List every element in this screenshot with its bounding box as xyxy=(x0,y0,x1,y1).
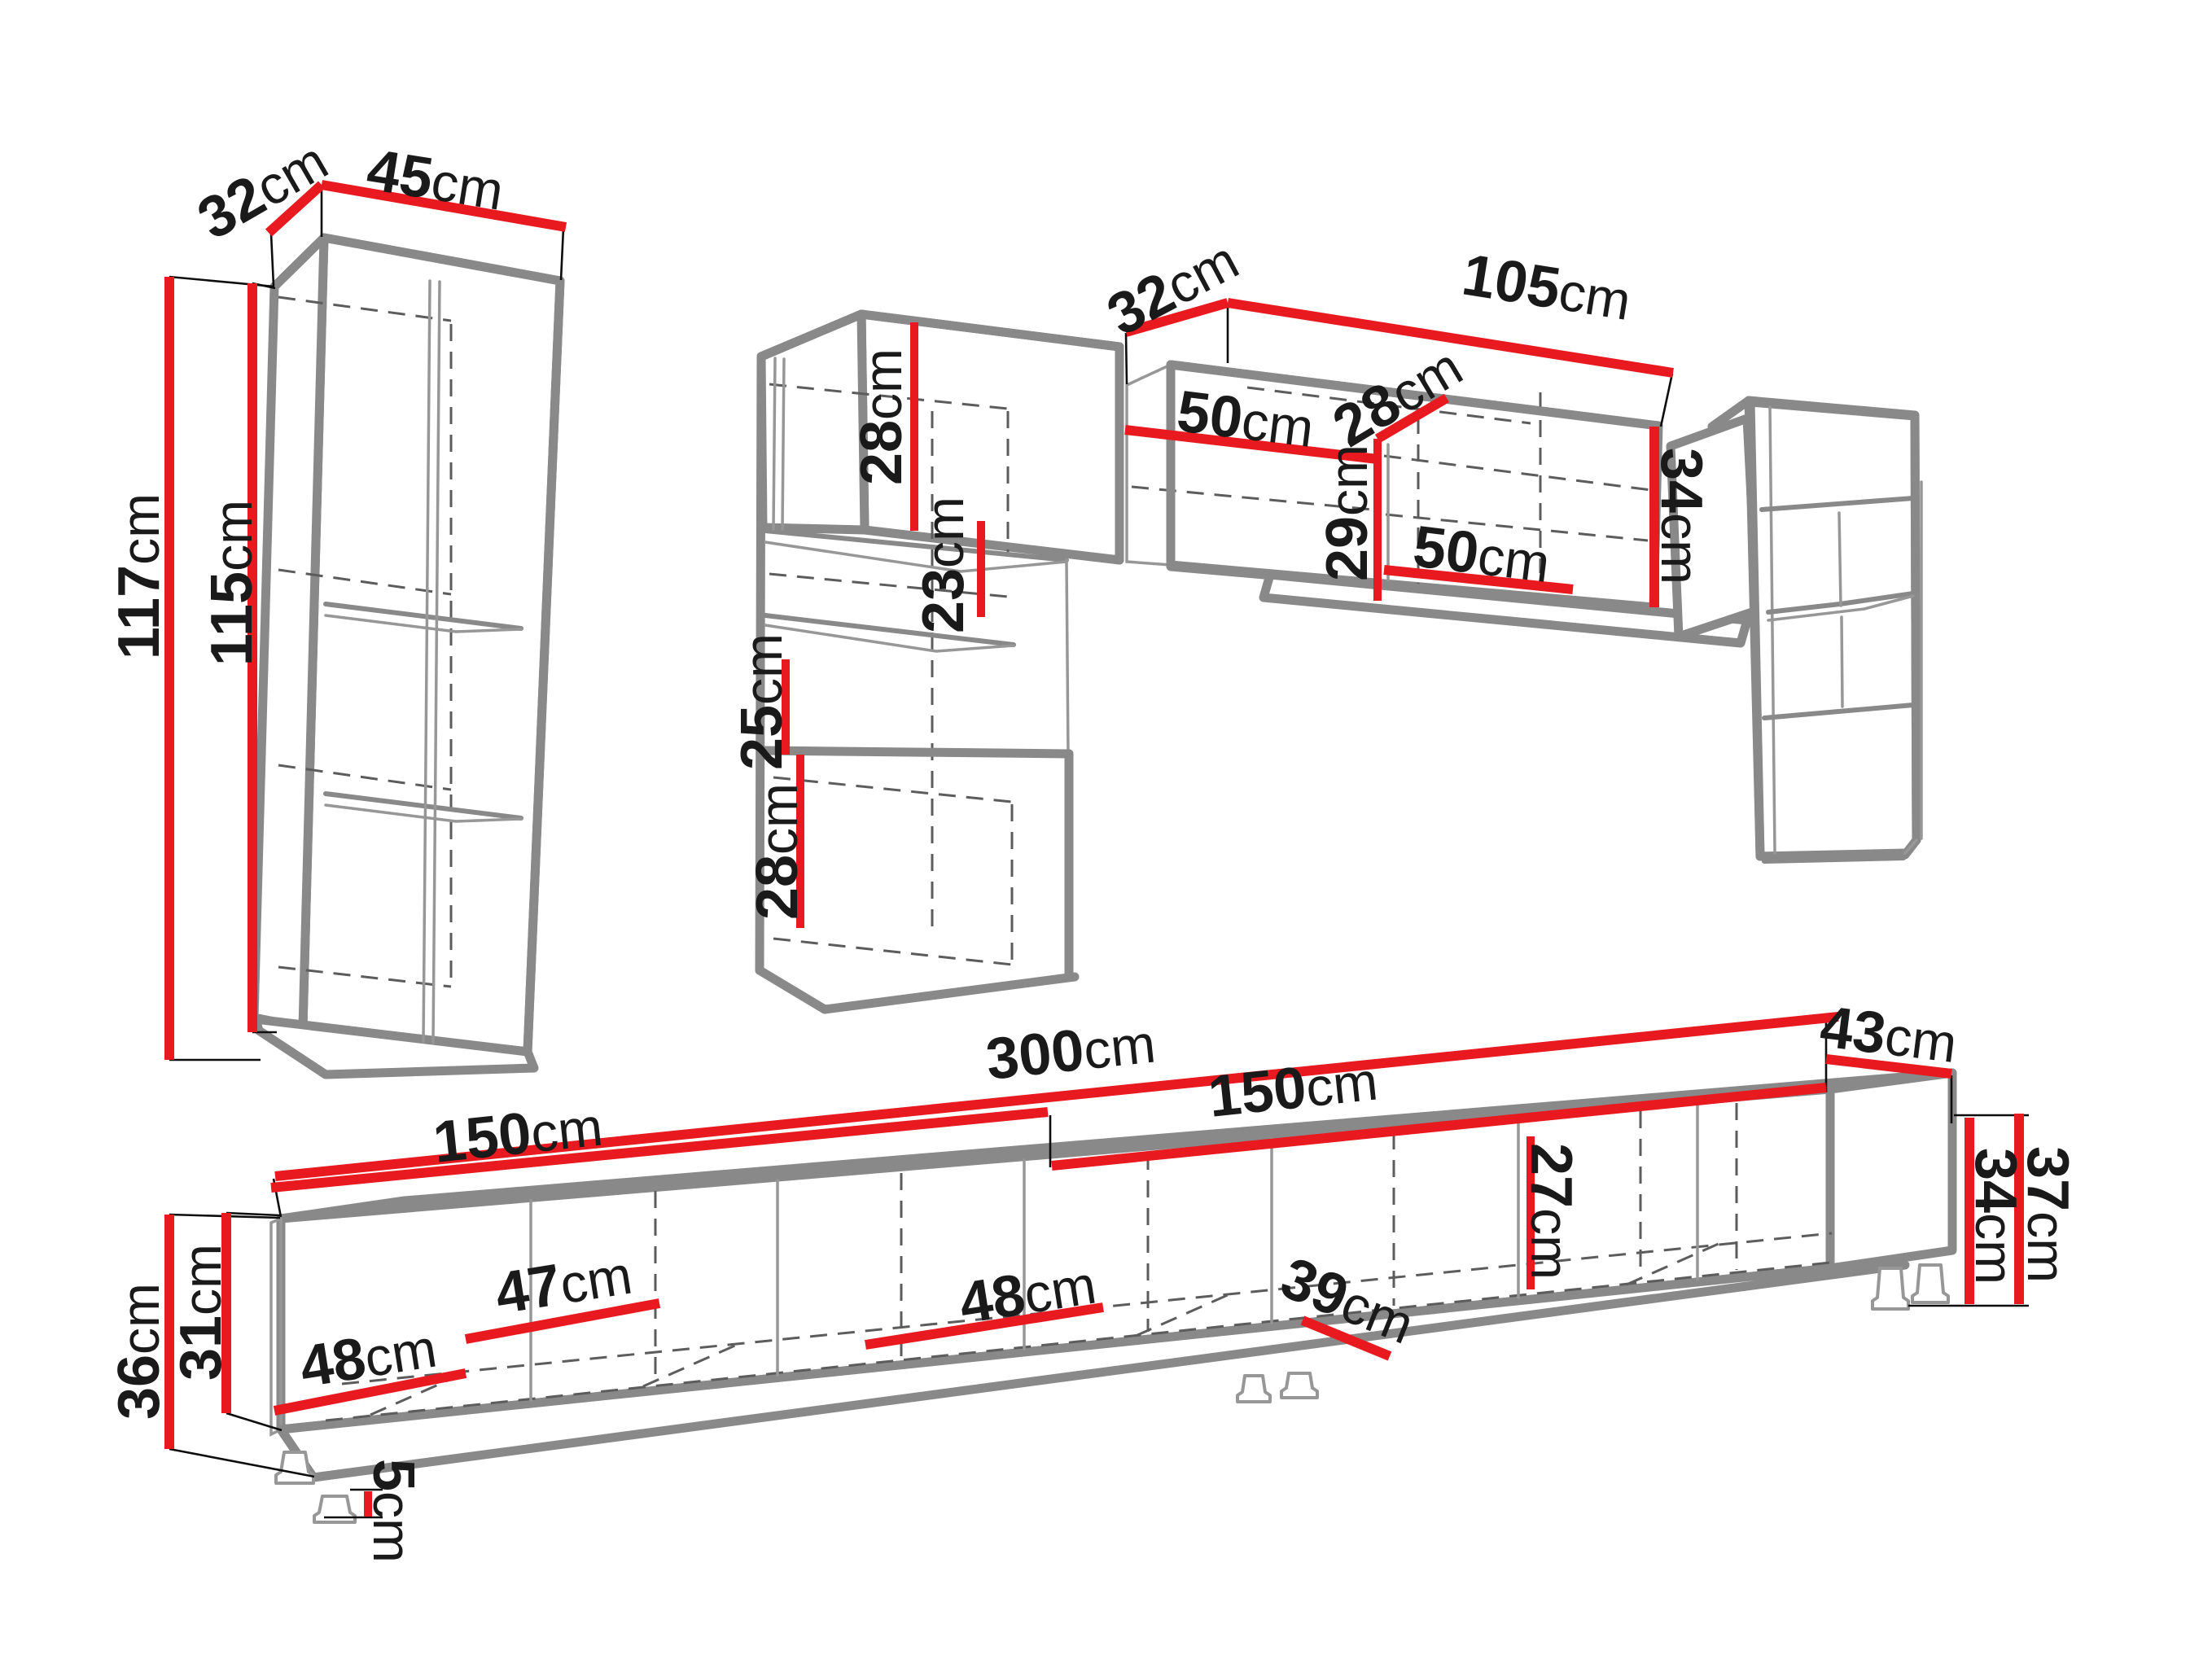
dim-value: 50 xyxy=(1174,379,1246,451)
tv-stand-foot xyxy=(1237,1376,1270,1402)
dim-value: 31 xyxy=(169,1315,234,1381)
dim-label-tv-left-width: 150cm xyxy=(430,1093,605,1175)
tv-stand-foot xyxy=(1912,1265,1948,1302)
dim-label-top-height: 34cm xyxy=(1649,448,1714,584)
diagram-canvas: 32cm45cm117cm115cm28cm23cm25cm28cm32cm10… xyxy=(0,0,2212,1659)
dim-label-tv-right-body: 34cm xyxy=(1963,1148,2028,1285)
dim-value: 27 xyxy=(1518,1143,1583,1208)
dim-label-mid-top-section: 28cm xyxy=(849,348,914,485)
dim-label-mid-bottom-section: 28cm xyxy=(745,783,810,920)
dim-label-left-height: 117cm xyxy=(107,493,172,659)
dim-value: 47 xyxy=(491,1252,566,1327)
dim-value: 117 xyxy=(107,565,172,659)
tv-stand-foot xyxy=(1281,1373,1317,1398)
dim-unit: cm xyxy=(361,1317,440,1388)
dim-unit: cm xyxy=(1474,525,1553,593)
dim-unit: cm xyxy=(914,497,975,568)
dim-value: 105 xyxy=(1458,242,1565,322)
dim-unit: cm xyxy=(1020,1254,1100,1324)
dim-label-tv-inner-height: 27cm xyxy=(1518,1143,1583,1280)
dim-unit: cm xyxy=(1520,1208,1580,1280)
dim-unit: cm xyxy=(1650,513,1710,584)
dim-label-mid-middle-gap: 25cm xyxy=(729,633,795,770)
dim-value: 300 xyxy=(983,1018,1087,1092)
dim-value: 150 xyxy=(430,1101,534,1175)
dim-unit: cm xyxy=(1965,1213,2025,1285)
dim-value: 34 xyxy=(1649,448,1714,513)
dim-unit: cm xyxy=(203,500,263,571)
dim-value: 48 xyxy=(955,1262,1030,1337)
dim-value: 150 xyxy=(1205,1055,1309,1130)
dim-unit: cm xyxy=(362,1491,423,1563)
dim-value: 45 xyxy=(363,138,438,212)
furniture-dimension-diagram: 32cm45cm117cm115cm28cm23cm25cm28cm32cm10… xyxy=(0,0,2212,1659)
middle-cabinet-bottom-slab xyxy=(760,970,1075,1009)
left-cabinet-front-face xyxy=(303,238,560,1052)
dim-label-tv-total-width: 300cm xyxy=(983,1010,1158,1092)
dim-unit: cm xyxy=(427,151,507,221)
dim-label-tv-feet-height: 5cm xyxy=(361,1459,426,1563)
dim-label-left-inner-height: 115cm xyxy=(199,500,265,666)
dim-label-top-depth: 32cm xyxy=(1097,226,1249,348)
dim-value: 36 xyxy=(107,1355,172,1420)
dim-unit: cm xyxy=(852,348,913,420)
dim-label-top-width: 105cm xyxy=(1458,242,1636,333)
dim-value: 50 xyxy=(1410,514,1483,586)
dim-value: 115 xyxy=(199,571,265,666)
dim-value: 5 xyxy=(361,1459,426,1491)
dim-label-tv-right-width: 150cm xyxy=(1205,1048,1380,1130)
dim-value: 28 xyxy=(745,855,810,920)
dim-value: 25 xyxy=(729,705,795,770)
dim-label-top-inner-height: 29cm xyxy=(1315,444,1380,581)
dim-unit: cm xyxy=(110,1283,170,1355)
dim-unit: cm xyxy=(2017,1211,2077,1283)
dim-unit: cm xyxy=(556,1244,636,1315)
top-cabinet-open-end xyxy=(1127,365,1171,565)
dim-label-mid-shelf-gap: 23cm xyxy=(911,497,976,633)
dim-unit: cm xyxy=(1881,1005,1960,1074)
dim-label-tv-height: 36cm xyxy=(107,1283,172,1420)
left-cabinet-drawing xyxy=(254,238,560,1075)
dim-unit: cm xyxy=(1555,260,1635,331)
dim-value: 28 xyxy=(849,420,914,485)
dim-label-left-depth: 32cm xyxy=(187,127,339,252)
dim-value: 43 xyxy=(1817,994,1890,1066)
tv-stand-foot xyxy=(1873,1268,1908,1309)
dim-unit: cm xyxy=(110,493,170,565)
dim-unit: cm xyxy=(1238,390,1316,458)
dim-label-tv-body-height: 31cm xyxy=(169,1244,234,1381)
dim-unit: cm xyxy=(1080,1013,1158,1081)
dim-value: 29 xyxy=(1315,516,1380,581)
dim-unit: cm xyxy=(733,633,793,705)
dim-unit: cm xyxy=(1318,444,1378,516)
dim-value: 48 xyxy=(296,1325,370,1400)
dim-value: 34 xyxy=(1963,1148,2028,1213)
dim-unit: cm xyxy=(1303,1051,1380,1118)
tv-stand-right-face xyxy=(1830,1073,1952,1268)
dim-label-left-width: 45cm xyxy=(363,138,509,223)
dim-value: 23 xyxy=(911,568,976,633)
dim-unit: cm xyxy=(172,1244,232,1315)
dim-unit: cm xyxy=(528,1097,605,1164)
middle-cabinet-drawing xyxy=(760,314,1119,1009)
dim-unit: cm xyxy=(748,783,808,855)
